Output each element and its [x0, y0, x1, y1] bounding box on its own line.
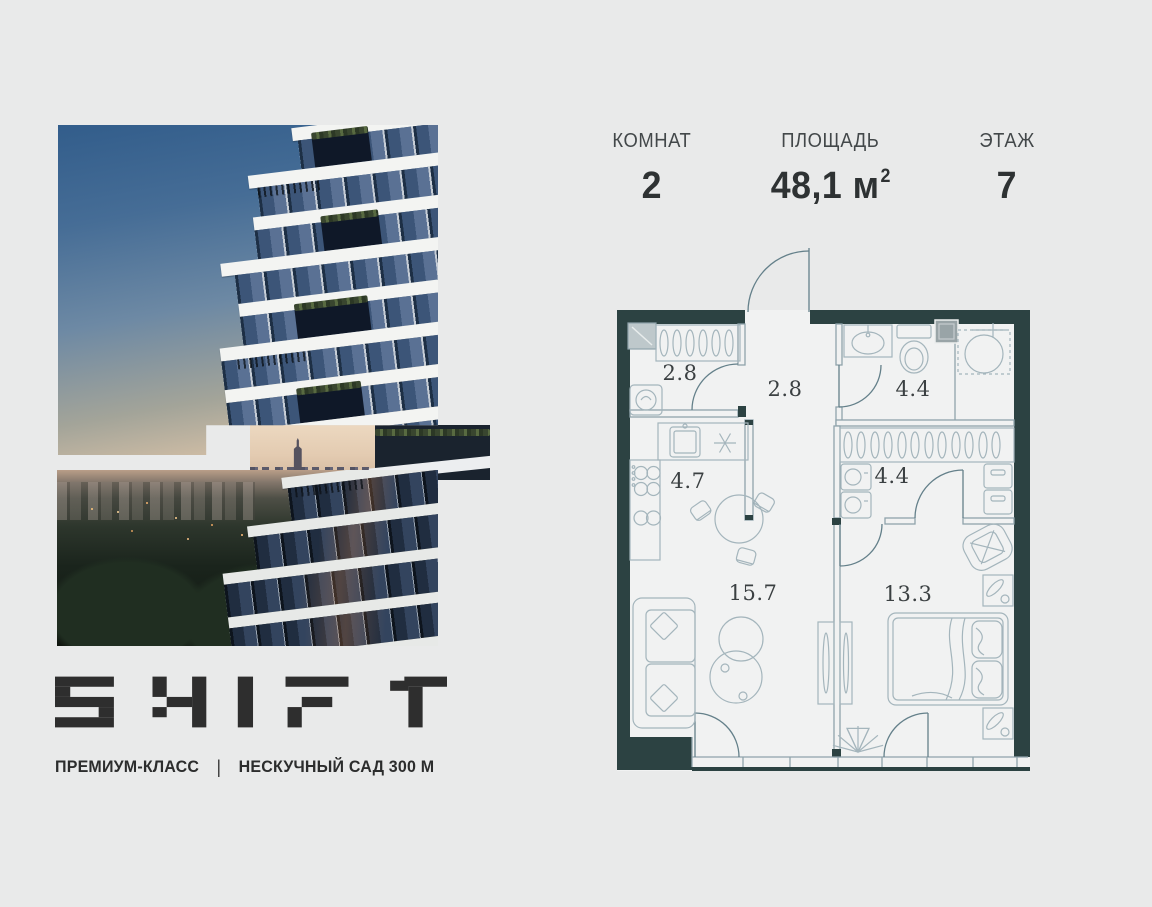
tower-spire-silhouette [291, 438, 305, 470]
glass-facade-art [194, 125, 438, 455]
glass-facade-dusk-art [212, 470, 438, 646]
dusk-panorama-photo [57, 470, 438, 646]
tagline-separator: | [216, 757, 221, 778]
location-label: НЕСКУЧНЫЙ САД 300 М [239, 758, 435, 777]
room-label-bathroom: 4.4 [896, 377, 931, 401]
boiler-icon [935, 320, 958, 343]
city-lights-art [91, 508, 93, 510]
stat-rooms-label: КОМНАТ [613, 130, 692, 153]
tagline: ПРЕМИУМ-КЛАСС | НЕСКУЧНЫЙ САД 300 М [55, 757, 434, 778]
listing-card: КОМНАТ 2 ПЛОЩАДЬ 48,1 м2 ЭТАЖ 7 [0, 0, 1152, 907]
logo-letter-t [390, 677, 447, 728]
logo-letter-s [55, 677, 114, 728]
floor-plan: 2.8 2.8 4.4 4.7 4.4 15.7 13.3 [612, 240, 1032, 775]
room-label-living: 15.7 [729, 581, 778, 605]
stat-area-value: 48,1 м2 [770, 165, 889, 208]
room-label-wardrobe: 4.4 [875, 464, 910, 488]
building-photo-main [58, 125, 438, 455]
stat-area-label: ПЛОЩАДЬ [781, 130, 879, 153]
stat-rooms-value: 2 [642, 165, 662, 208]
logo-letter-h [152, 677, 206, 728]
shelf-cabinet-icon [628, 323, 656, 349]
stat-floor: ЭТАЖ 7 [942, 130, 1072, 208]
room-label-storage: 2.8 [663, 361, 698, 385]
shift-logo [55, 676, 447, 728]
stat-area: ПЛОЩАДЬ 48,1 м2 [765, 130, 895, 208]
premium-class-label: ПРЕМИУМ-КЛАСС [55, 758, 199, 777]
stat-floor-value: 7 [997, 165, 1017, 208]
room-label-hallway: 2.8 [768, 377, 803, 401]
room-label-bedroom: 13.3 [884, 582, 933, 606]
square-meter-sup: 2 [880, 166, 890, 187]
logo-letter-f [286, 677, 349, 728]
entry-door [748, 248, 809, 312]
room-label-kitchen: 4.7 [671, 469, 706, 493]
stat-floor-label: ЭТАЖ [979, 130, 1034, 153]
logo-letter-i [238, 677, 253, 728]
stat-rooms: КОМНАТ 2 [587, 130, 717, 208]
